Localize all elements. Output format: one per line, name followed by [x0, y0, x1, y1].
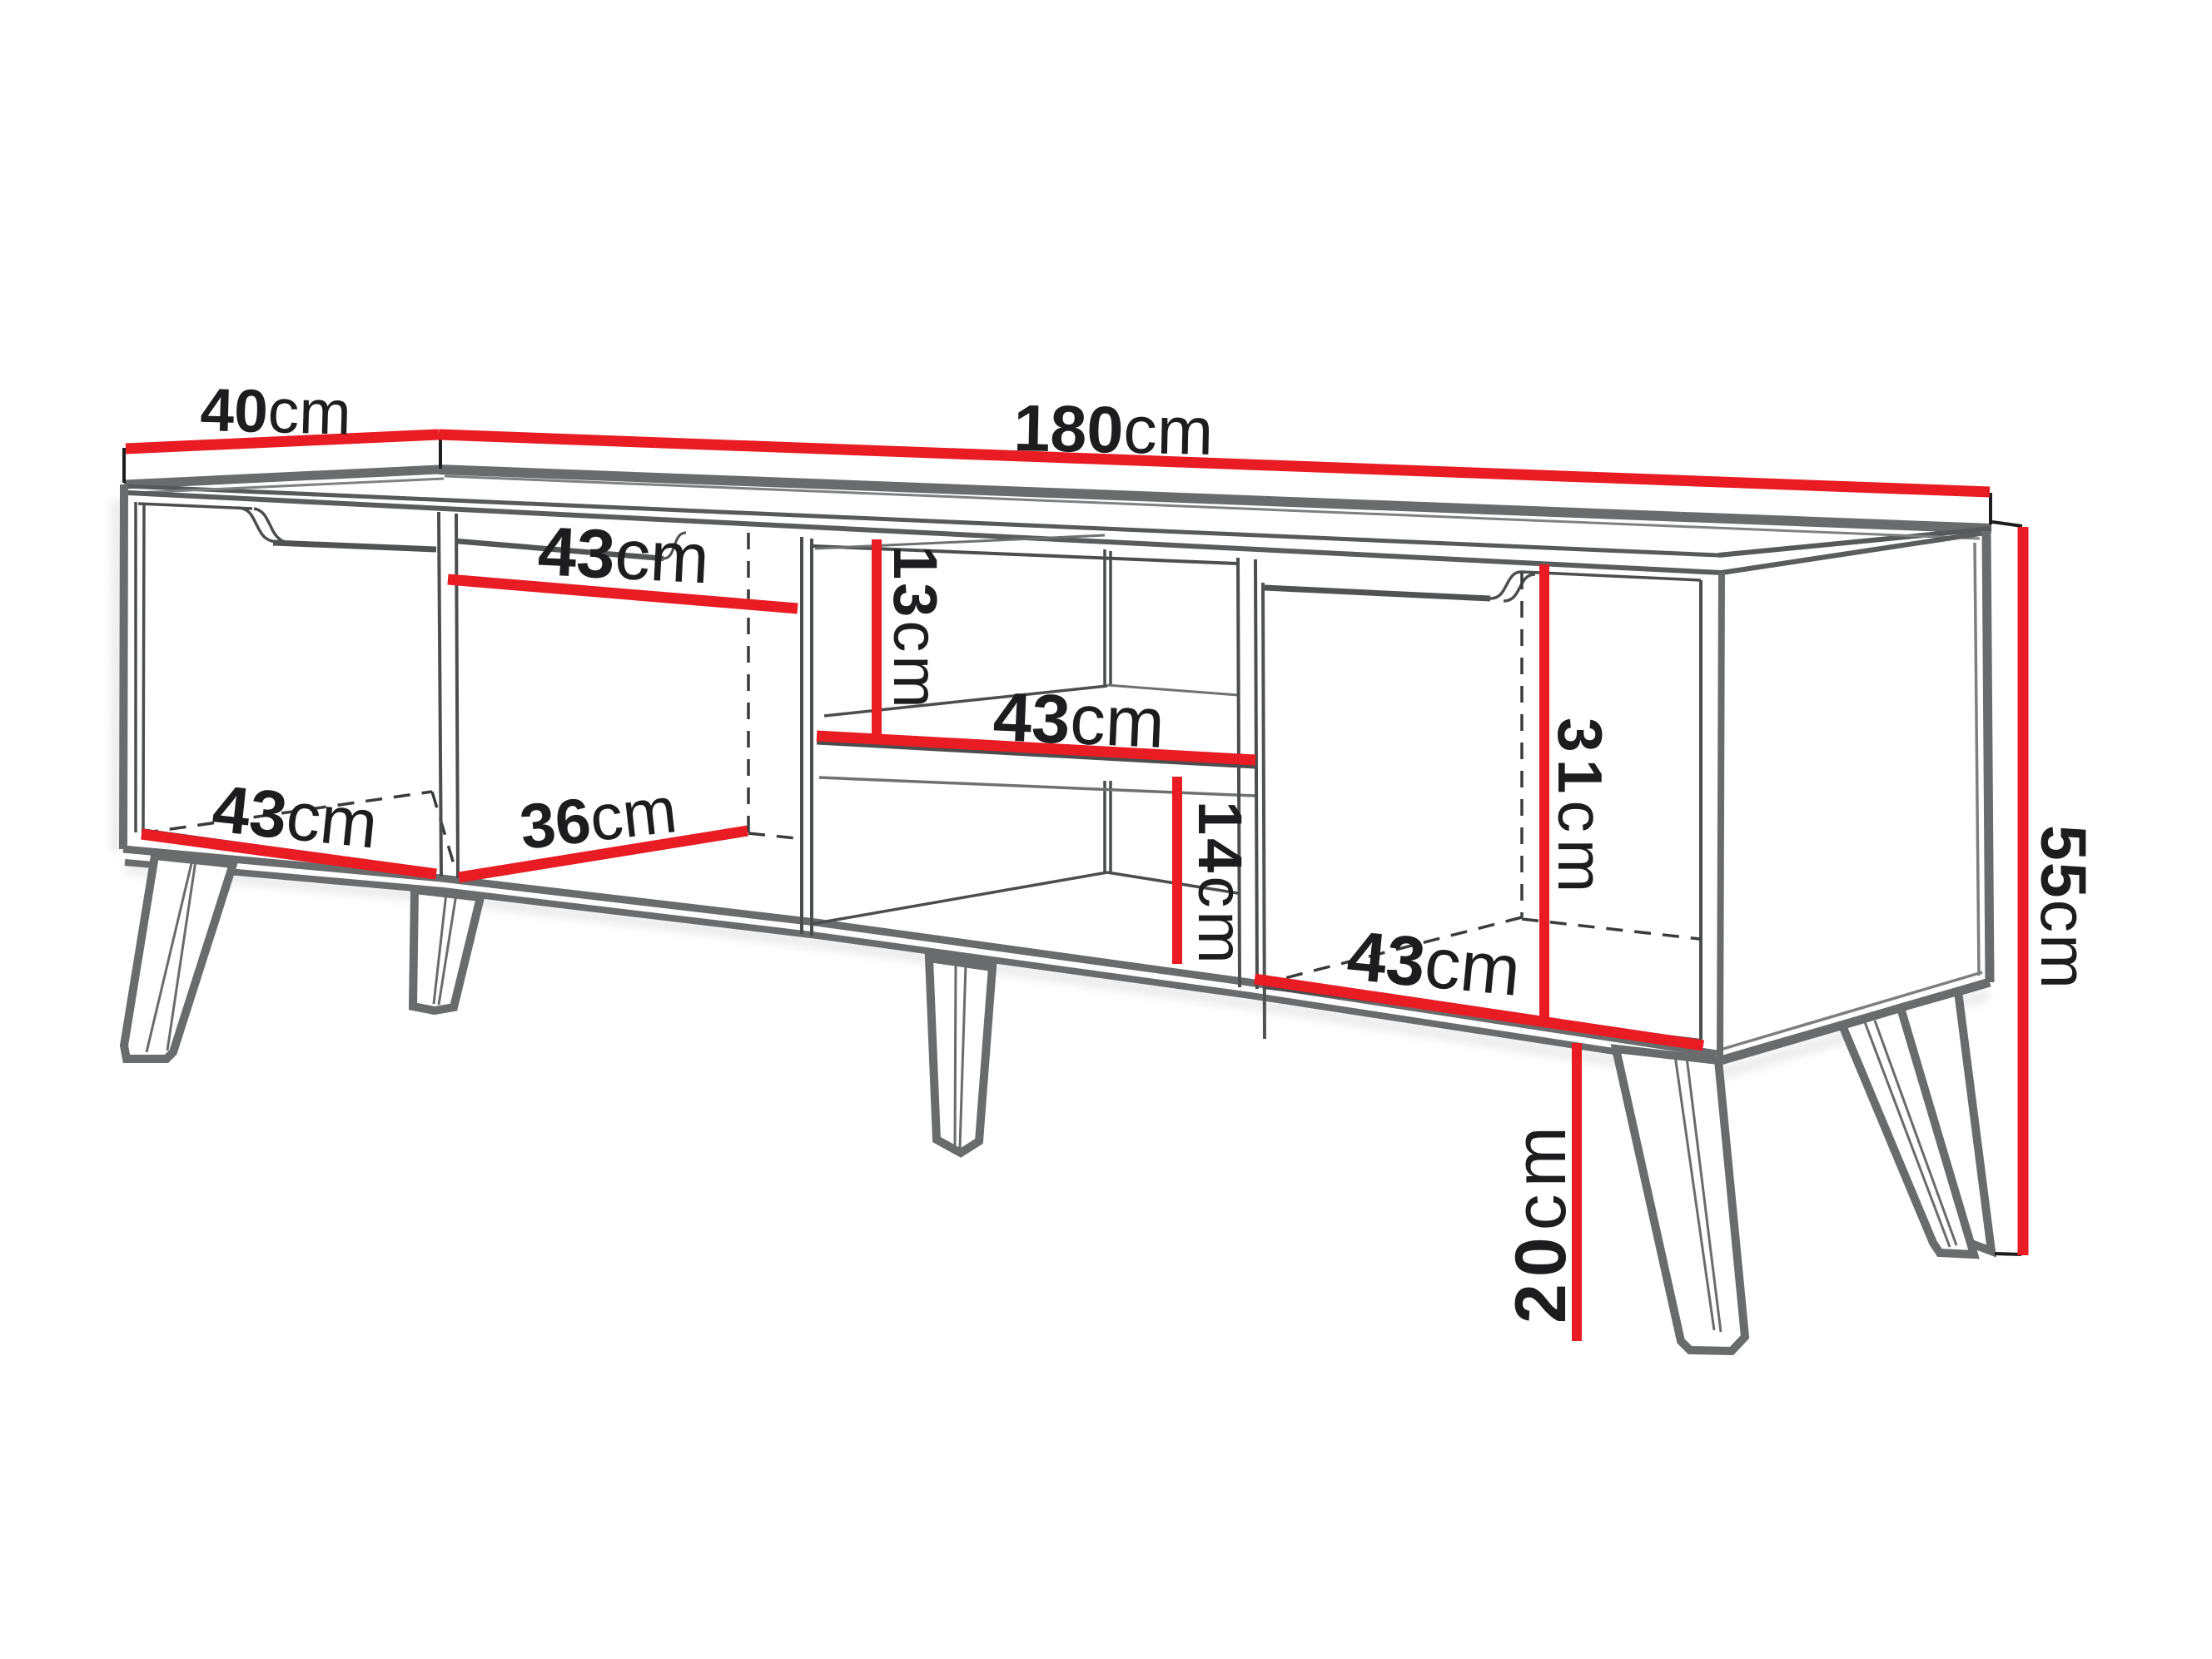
svg-text:20cm: 20cm: [1499, 1120, 1581, 1324]
svg-text:180cm: 180cm: [1013, 390, 1215, 469]
svg-text:40cm: 40cm: [200, 374, 352, 448]
svg-text:43cm: 43cm: [536, 511, 711, 599]
svg-text:43cm: 43cm: [992, 677, 1166, 763]
svg-text:55cm: 55cm: [2027, 825, 2101, 991]
svg-text:31cm: 31cm: [1544, 718, 1616, 899]
svg-text:14cm: 14cm: [1185, 801, 1255, 967]
svg-text:13cm: 13cm: [880, 545, 951, 712]
